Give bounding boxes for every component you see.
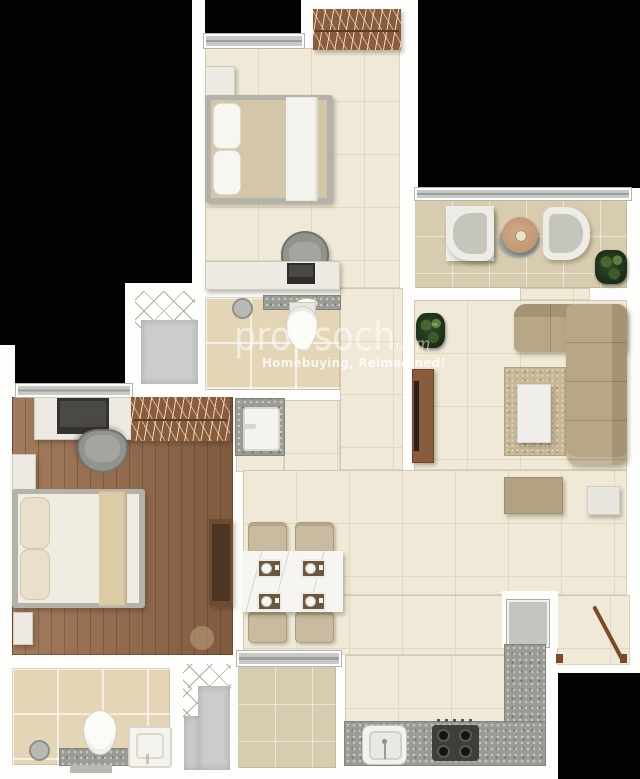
wardrobe-master [131, 397, 230, 441]
cup [275, 565, 279, 570]
shaft2-floor-lower [184, 716, 199, 770]
washbasin-faucet [244, 424, 256, 429]
floorplan-canvas: propsochcom™ Homebuying, Reimagined! [0, 0, 640, 779]
bed-master [12, 489, 145, 608]
shelf-master [12, 454, 36, 494]
burner [459, 729, 472, 742]
sofa-chaise-section [566, 304, 627, 465]
dinner-plate [261, 596, 272, 607]
shower-head-bathroom1 [232, 298, 253, 319]
fridge [507, 600, 549, 647]
shaft1-floor [141, 320, 198, 384]
bed-runner [99, 491, 127, 606]
burner [459, 745, 472, 758]
table-centerpiece [515, 230, 527, 242]
plant-living [416, 313, 445, 348]
placemat [257, 559, 282, 578]
bed-bedroom2 [205, 95, 333, 203]
floor-corridor [340, 288, 403, 470]
dining-chair [295, 611, 334, 643]
hob-knobs [437, 719, 475, 722]
hob [432, 725, 479, 761]
shaft2-hatch-left [183, 688, 199, 718]
dresser-top [212, 524, 230, 601]
wall-west-stub [0, 345, 15, 385]
dinner-plate [305, 596, 316, 607]
wardrobe-divider [315, 30, 399, 32]
window-master-bedroom [16, 384, 132, 397]
chair-seat [85, 435, 120, 462]
dinner-plate [305, 563, 316, 574]
bed-pillow [213, 150, 241, 195]
dinner-plate [261, 563, 272, 574]
shaft2-floor [198, 686, 230, 770]
shower-head-bathroom2 [29, 740, 50, 761]
desk-bedroom2 [205, 261, 340, 290]
bed-pillow [213, 103, 241, 149]
nightstand-bedroom2 [205, 66, 235, 98]
dining-chair [248, 611, 287, 643]
tv-screen [414, 381, 419, 451]
side-table [587, 486, 620, 515]
bed-pillow [20, 497, 50, 549]
wardrobe-divider [133, 419, 228, 421]
lounger-left [446, 206, 494, 261]
placemat [301, 559, 326, 578]
sink-faucet [146, 754, 149, 764]
washbasin [243, 407, 280, 451]
monitor-screen [60, 401, 106, 427]
threshold-bathroom2 [70, 765, 112, 773]
bed-runner [286, 97, 318, 201]
lounger-cushion [453, 213, 487, 254]
placemat [301, 592, 326, 611]
pouf-master [190, 626, 214, 650]
toilet-bathroom1 [286, 302, 317, 349]
cup [319, 565, 323, 570]
window-utility-balcony [237, 651, 341, 666]
cup [319, 598, 323, 603]
lounger-cushion [549, 214, 583, 253]
floor-balcony-door-gap [520, 288, 590, 300]
sink-faucet-stem [384, 743, 386, 759]
wardrobe-bedroom2 [313, 9, 401, 50]
exterior-cutout-top [205, 0, 301, 34]
coffee-table [517, 384, 551, 443]
bed-pillow [20, 549, 50, 600]
sink-bathroom2 [128, 726, 172, 768]
tv-unit [412, 369, 434, 463]
window-bedroom2 [204, 34, 304, 48]
dining-chair [295, 522, 334, 554]
toilet-bowl [286, 306, 318, 350]
dining-chair [248, 522, 287, 554]
kitchen-counter-right [505, 645, 545, 723]
balcony-table [502, 217, 538, 253]
dining-table [243, 551, 343, 612]
cup [275, 598, 279, 603]
floor-kitchen [345, 655, 505, 722]
dresser-master [209, 519, 233, 606]
floor-utility-balcony [238, 667, 336, 768]
burner [437, 729, 450, 742]
kitchen-sink [362, 725, 407, 765]
bench-master [13, 612, 33, 645]
door-jamb [556, 654, 563, 663]
floor-bathroom1 [205, 297, 340, 390]
laptop [287, 263, 315, 284]
sink-basin [136, 733, 164, 759]
ottoman [504, 477, 563, 514]
laptop-screen [289, 265, 313, 277]
plant-balcony [595, 250, 627, 284]
burner [437, 745, 450, 758]
lounger-right [543, 207, 590, 260]
window-balcony [415, 188, 631, 200]
floor-corridor-west [284, 400, 340, 472]
placemat [257, 592, 282, 611]
